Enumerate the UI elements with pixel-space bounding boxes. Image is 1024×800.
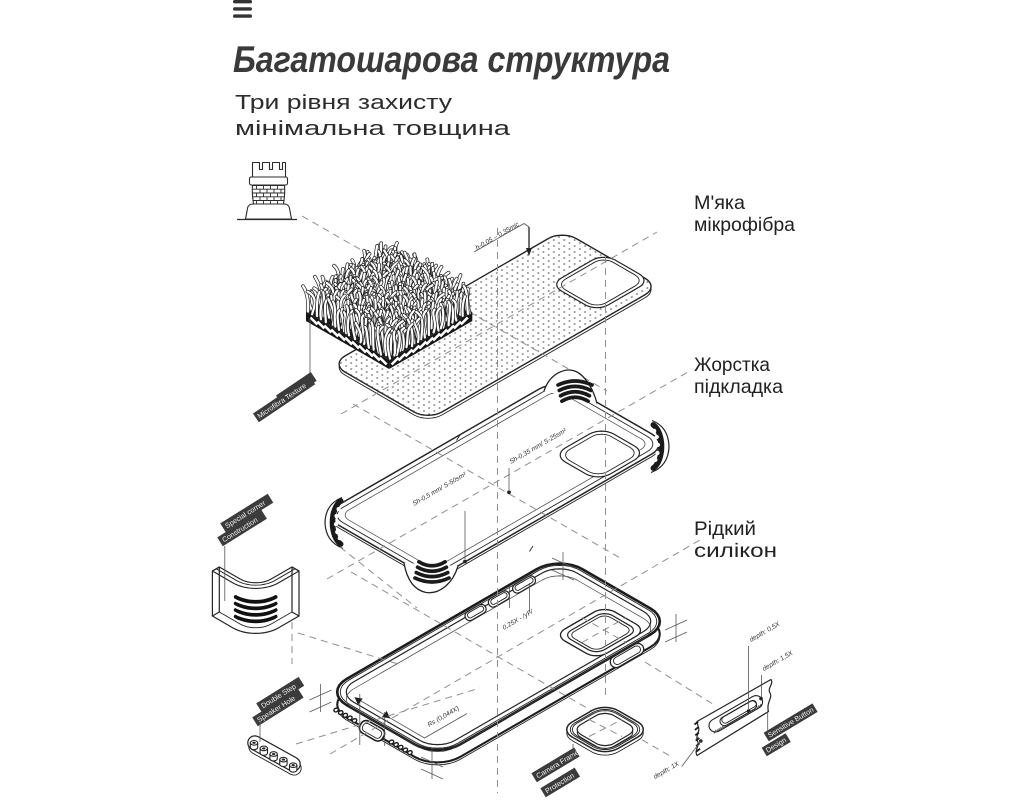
svg-text:силікон: силікон	[694, 540, 777, 562]
svg-text:підкладка: підкладка	[694, 376, 783, 398]
svg-text:М'яка: М'яка	[694, 192, 745, 214]
svg-text:Багатошарова структура: Багатошарова структура	[233, 39, 670, 80]
svg-text:Рідкий: Рідкий	[694, 518, 756, 540]
svg-text:мікрофібра: мікрофібра	[694, 214, 795, 236]
svg-text:мінімальна товщина: мінімальна товщина	[235, 118, 511, 140]
svg-text:Жорстка: Жорстка	[694, 354, 770, 376]
svg-text:Три рівня захисту: Три рівня захисту	[235, 92, 452, 114]
